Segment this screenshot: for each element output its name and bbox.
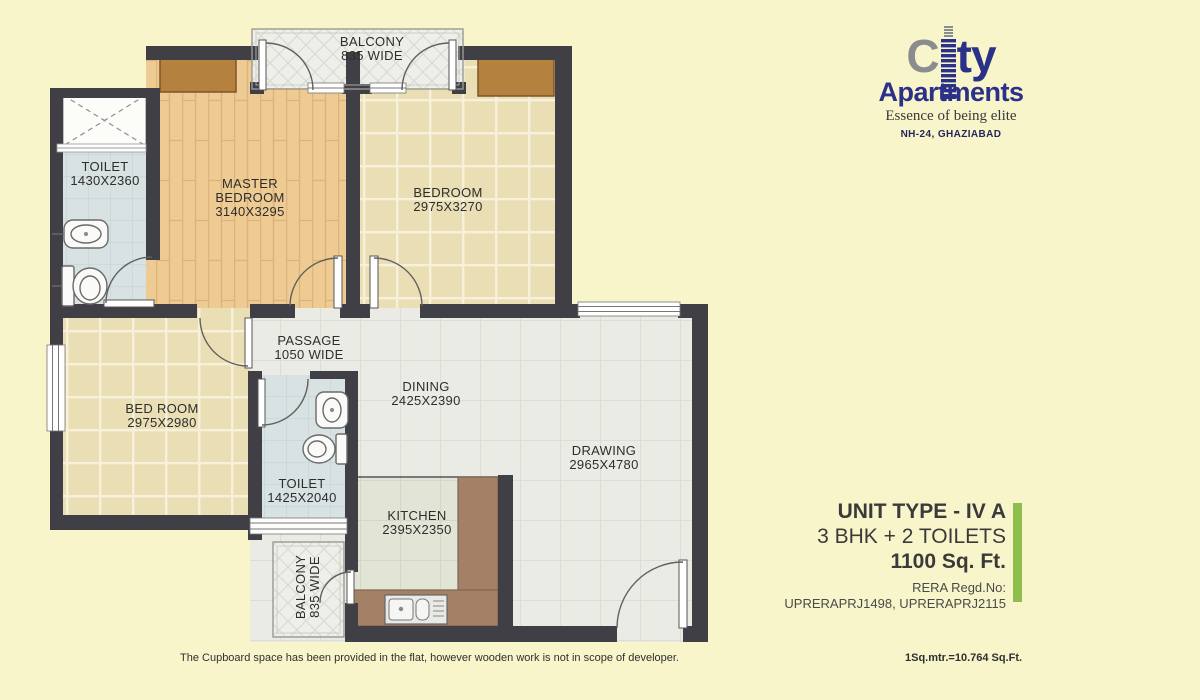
label-bedroom: BEDROOM2975X3270: [373, 186, 523, 214]
label-balcony-bottom: BALCONY835 WIDE: [294, 532, 322, 642]
common-toilet-wc-icon: [303, 434, 347, 464]
label-toilet-common: TOILET1425X2040: [242, 477, 362, 505]
logo-letter-c: C: [906, 36, 939, 76]
bedroom-cupboard: [478, 58, 554, 96]
unit-info-block: UNIT TYPE - IV A 3 BHK + 2 TOILETS 1100 …: [784, 499, 1006, 612]
unit-configuration: 3 BHK + 2 TOILETS: [784, 524, 1006, 549]
logo-city-word: C: [876, 30, 1026, 76]
kitchen-sink-icon: [385, 595, 447, 624]
rera-numbers: UPRERAPRJ1498, UPRERAPRJ2115: [784, 596, 1006, 612]
label-balcony-top: BALCONY835 WIDE: [297, 35, 447, 63]
rera-label: RERA Regd.No:: [784, 580, 1006, 596]
drawing-window: [578, 302, 680, 316]
logo-letters-ty: ty: [957, 36, 996, 76]
unit-area: 1100 Sq. Ft.: [784, 549, 1006, 574]
cupboard-disclaimer: The Cupboard space has been provided in …: [180, 652, 679, 664]
master-cupboard: [160, 58, 236, 92]
logo-tagline: Essence of being elite: [876, 108, 1026, 125]
floorplan-page: BALCONY835 WIDE TOILET1430X2360 MASTER B…: [0, 0, 1200, 700]
brand-logo: C: [876, 30, 1026, 140]
label-toilet-master: TOILET1430X2360: [45, 160, 165, 188]
building-tower-icon: [940, 30, 957, 76]
label-kitchen: KITCHEN2395X2350: [352, 509, 482, 537]
bed-room-window: [47, 345, 65, 431]
label-dining: DINING2425X2390: [361, 380, 491, 408]
label-bed-room: BED ROOM2975X2980: [92, 402, 232, 430]
common-toilet-washbasin-icon: [316, 392, 348, 428]
unit-type-title: UNIT TYPE - IV A: [784, 499, 1006, 524]
logo-location: NH-24, GHAZIABAD: [876, 129, 1026, 140]
label-master-bedroom: MASTER BEDROOM 3140X3295: [175, 177, 325, 219]
accent-green-bar: [1013, 503, 1022, 602]
shaft-ledge: [57, 144, 146, 152]
label-drawing: DRAWING2965X4780: [539, 444, 669, 472]
label-passage: PASSAGE1050 WIDE: [244, 334, 374, 362]
conversion-note: 1Sq.mtr.=10.764 Sq.Ft.: [905, 652, 1022, 664]
